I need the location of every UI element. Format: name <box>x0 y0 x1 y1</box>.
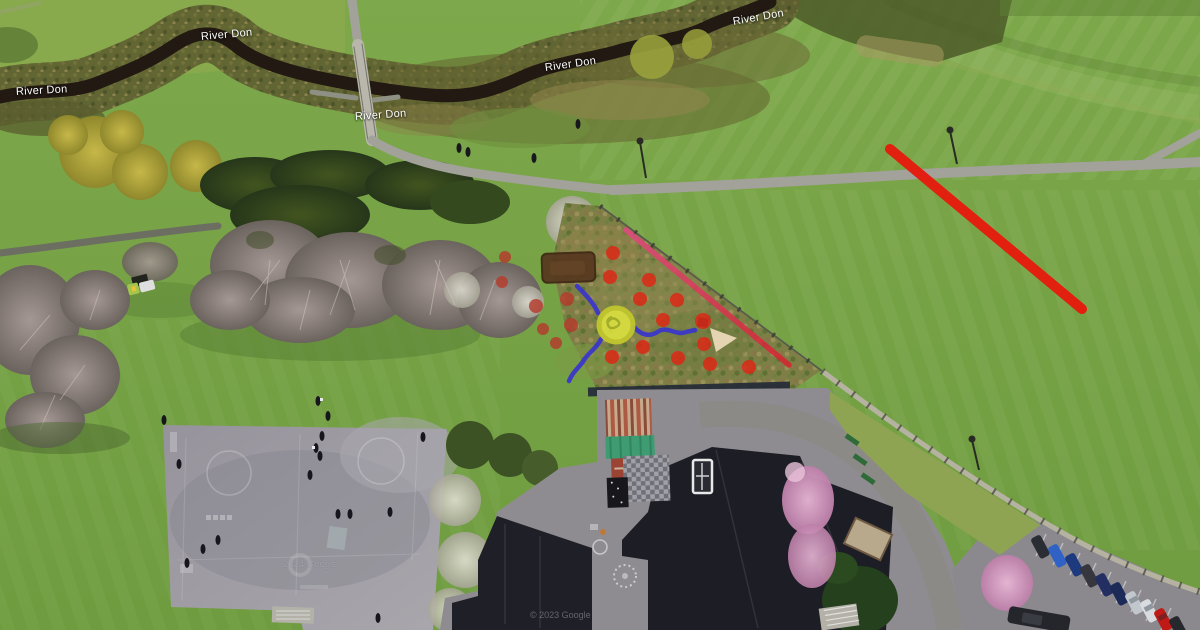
yellow-circle-marker <box>599 308 633 342</box>
red-dot-marker <box>670 293 684 307</box>
watermark-copyright: © 2023 Google <box>530 610 591 620</box>
red-dot-marker <box>560 292 574 306</box>
watermark-google: 2024 Google <box>283 559 337 570</box>
red-route-line <box>890 149 1082 309</box>
red-dot-marker <box>605 350 619 364</box>
red-dot-marker <box>697 337 711 351</box>
red-dot-marker <box>496 276 508 288</box>
red-dot-marker <box>742 360 756 374</box>
blue-route-line <box>577 286 598 313</box>
red-dot-marker <box>703 357 717 371</box>
red-dot-marker <box>642 273 656 287</box>
red-dot-marker <box>603 270 617 284</box>
red-dot-marker <box>564 318 578 332</box>
red-dot-marker <box>671 351 685 365</box>
red-dot-marker <box>695 313 711 329</box>
aerial-satellite-map: River DonRiver DonRiver DonRiver DonRive… <box>0 0 1200 630</box>
red-dot-marker <box>656 313 670 327</box>
blue-route-line <box>634 327 695 335</box>
red-dot-marker <box>550 337 562 349</box>
red-dot-marker <box>537 323 549 335</box>
brown-area-texture <box>550 260 585 275</box>
blue-route-line <box>569 339 601 381</box>
red-dot-marker <box>633 292 647 306</box>
drawn-annotations-layer <box>0 0 1200 630</box>
red-dot-marker <box>606 246 620 260</box>
red-dot-marker <box>499 251 511 263</box>
red-dot-marker <box>636 340 650 354</box>
red-dot-marker <box>529 299 543 313</box>
